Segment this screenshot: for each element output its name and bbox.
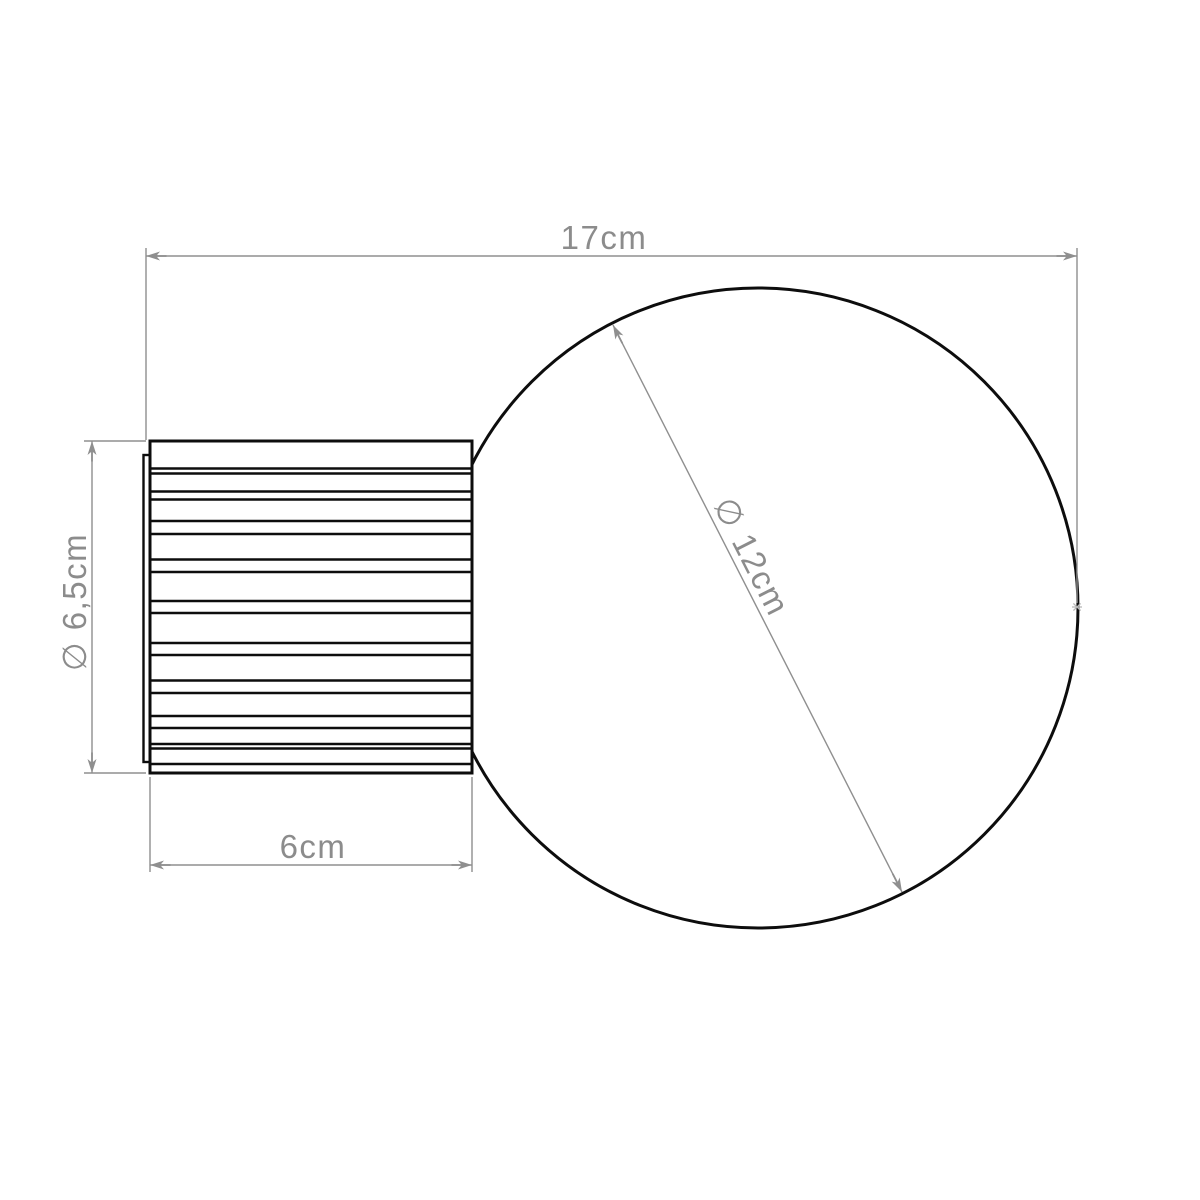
arrowhead [1057, 252, 1078, 261]
technical-drawing-canvas: 17cm ∅ 6,5cm 6cm [0, 0, 1200, 1200]
drawing-svg: 17cm ∅ 6,5cm 6cm [0, 0, 1200, 1200]
overall-width-dimension-label: 17cm [561, 219, 648, 256]
arrowhead [88, 441, 97, 462]
base-diameter-dimension-label: ∅ 6,5cm [56, 533, 93, 671]
base-body [144, 441, 473, 773]
arrowhead [452, 861, 473, 870]
arrowhead [146, 252, 167, 261]
base-width-dimension-label: 6cm [280, 828, 347, 865]
base-diameter-dimension: ∅ 6,5cm [56, 441, 146, 773]
arrowhead [88, 753, 97, 774]
base-width-dimension: 6cm [150, 777, 472, 872]
arrowhead [150, 861, 171, 870]
